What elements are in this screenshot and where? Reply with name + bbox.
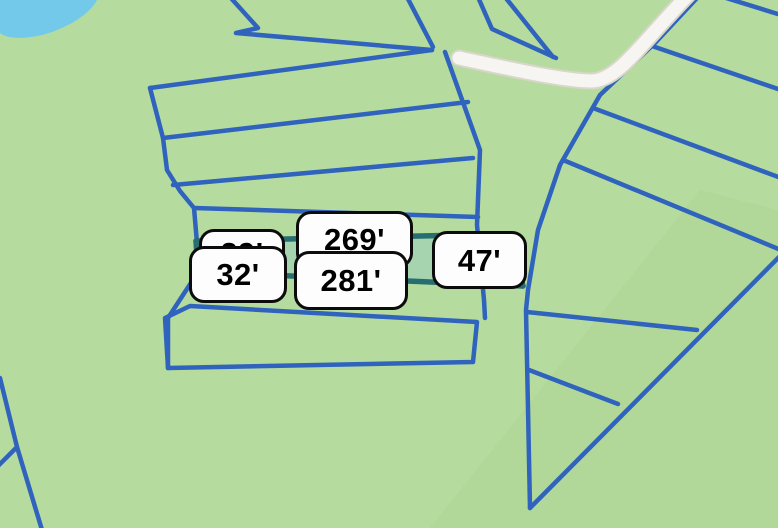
pond-water-body (0, 0, 98, 38)
parcel-line (407, 0, 433, 47)
parcel-line-block-west (150, 88, 198, 368)
parcel-line (0, 378, 42, 528)
parcel-line-lower-strip (165, 306, 477, 368)
parcel-line (0, 447, 17, 467)
measurement-label-bottom: 281' (294, 251, 408, 310)
road (459, 0, 688, 81)
map-canvas[interactable]: 29' 32' 269' 281' 47' (0, 0, 778, 528)
parcel-line (652, 46, 778, 90)
parcel-line (230, 0, 432, 50)
measurement-label-right: 47' (432, 231, 527, 289)
measurement-label-left: 32' (189, 246, 287, 303)
parcel-line (173, 158, 473, 185)
parcel-line (593, 108, 778, 178)
parcel-line (163, 102, 468, 138)
parcel-line (505, 0, 553, 57)
road-surface (459, 0, 688, 81)
parcel-line-block-top (150, 50, 432, 88)
parcel-line (723, 0, 778, 15)
